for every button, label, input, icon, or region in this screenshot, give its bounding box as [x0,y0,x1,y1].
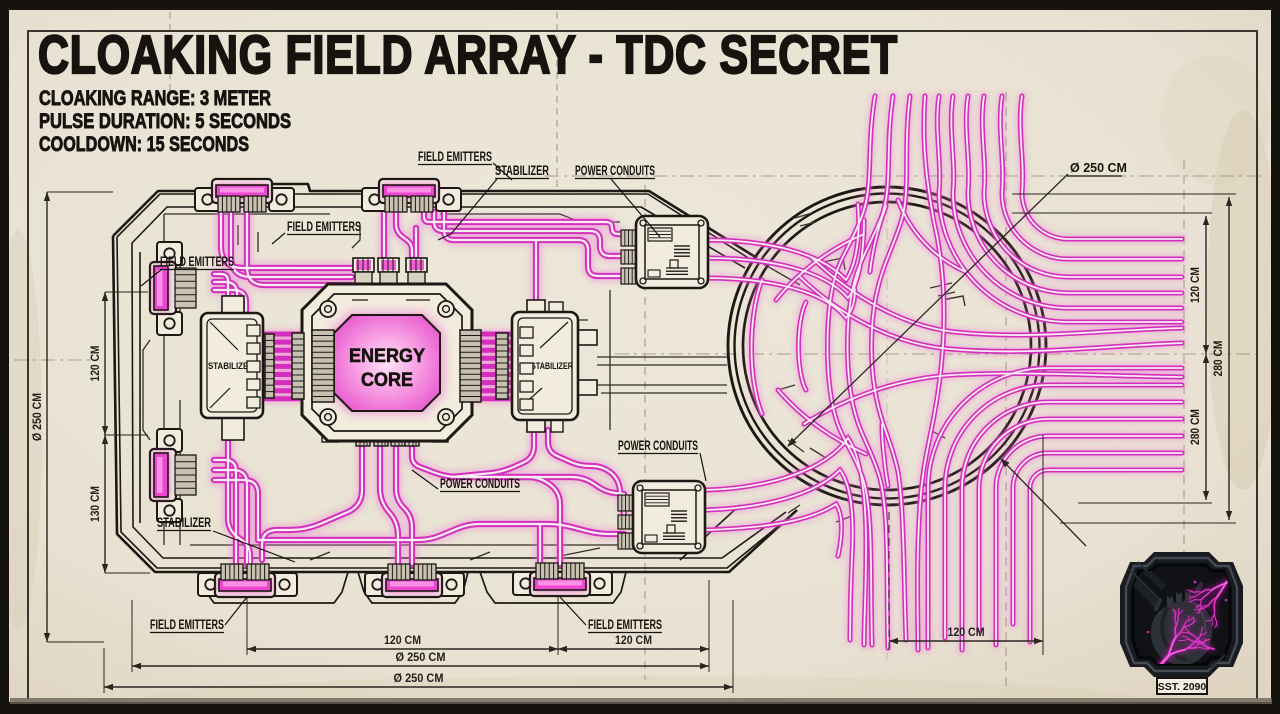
svg-text:COOLDOWN: 15 SECONDS: COOLDOWN: 15 SECONDS [39,133,249,156]
svg-text:STABILIZER: STABILIZER [495,163,549,178]
svg-text:FIELD EMITTERS: FIELD EMITTERS [150,617,224,632]
svg-text:280 CM: 280 CM [1190,409,1202,445]
svg-text:CLOAKING FIELD ARRAY - TDC SEC: CLOAKING FIELD ARRAY - TDC SECRET [38,25,898,85]
svg-text:120 CM: 120 CM [90,346,102,382]
svg-text:FIELD EMITTERS: FIELD EMITTERS [588,617,662,632]
svg-text:CLOAKING RANGE: 3 METER: CLOAKING RANGE: 3 METER [39,87,271,110]
svg-text:POWER CONDUITS: POWER CONDUITS [618,438,698,453]
svg-text:FIELD EMITTERS: FIELD EMITTERS [287,219,361,234]
svg-text:Ø 250 CM: Ø 250 CM [396,650,446,664]
svg-text:SST. 2090: SST. 2090 [1158,681,1207,693]
svg-text:STABILIZER: STABILIZER [531,361,573,372]
svg-text:120 CM: 120 CM [948,625,985,639]
svg-text:280 CM: 280 CM [1213,341,1225,377]
svg-text:Ø 250 CM: Ø 250 CM [394,671,444,685]
svg-text:POWER CONDUITS: POWER CONDUITS [575,163,655,178]
svg-text:CORE: CORE [361,369,413,391]
svg-text:STABILIZER: STABILIZER [157,515,211,530]
svg-text:POWER CONDUITS: POWER CONDUITS [440,476,520,491]
svg-text:FIELD EMITTERS: FIELD EMITTERS [418,149,492,164]
svg-text:PULSE DURATION: 5 SECONDS: PULSE DURATION: 5 SECONDS [39,110,291,133]
svg-text:Ø 250 CM: Ø 250 CM [32,393,44,441]
svg-text:120 CM: 120 CM [1190,267,1202,303]
svg-text:120 CM: 120 CM [384,633,421,647]
svg-text:Ø 250 CM: Ø 250 CM [1070,161,1127,175]
svg-text:FIELD EMITTERS: FIELD EMITTERS [160,254,234,269]
svg-text:ENERGY: ENERGY [349,345,425,367]
svg-text:120 CM: 120 CM [615,633,652,647]
svg-text:130 CM: 130 CM [90,486,102,522]
